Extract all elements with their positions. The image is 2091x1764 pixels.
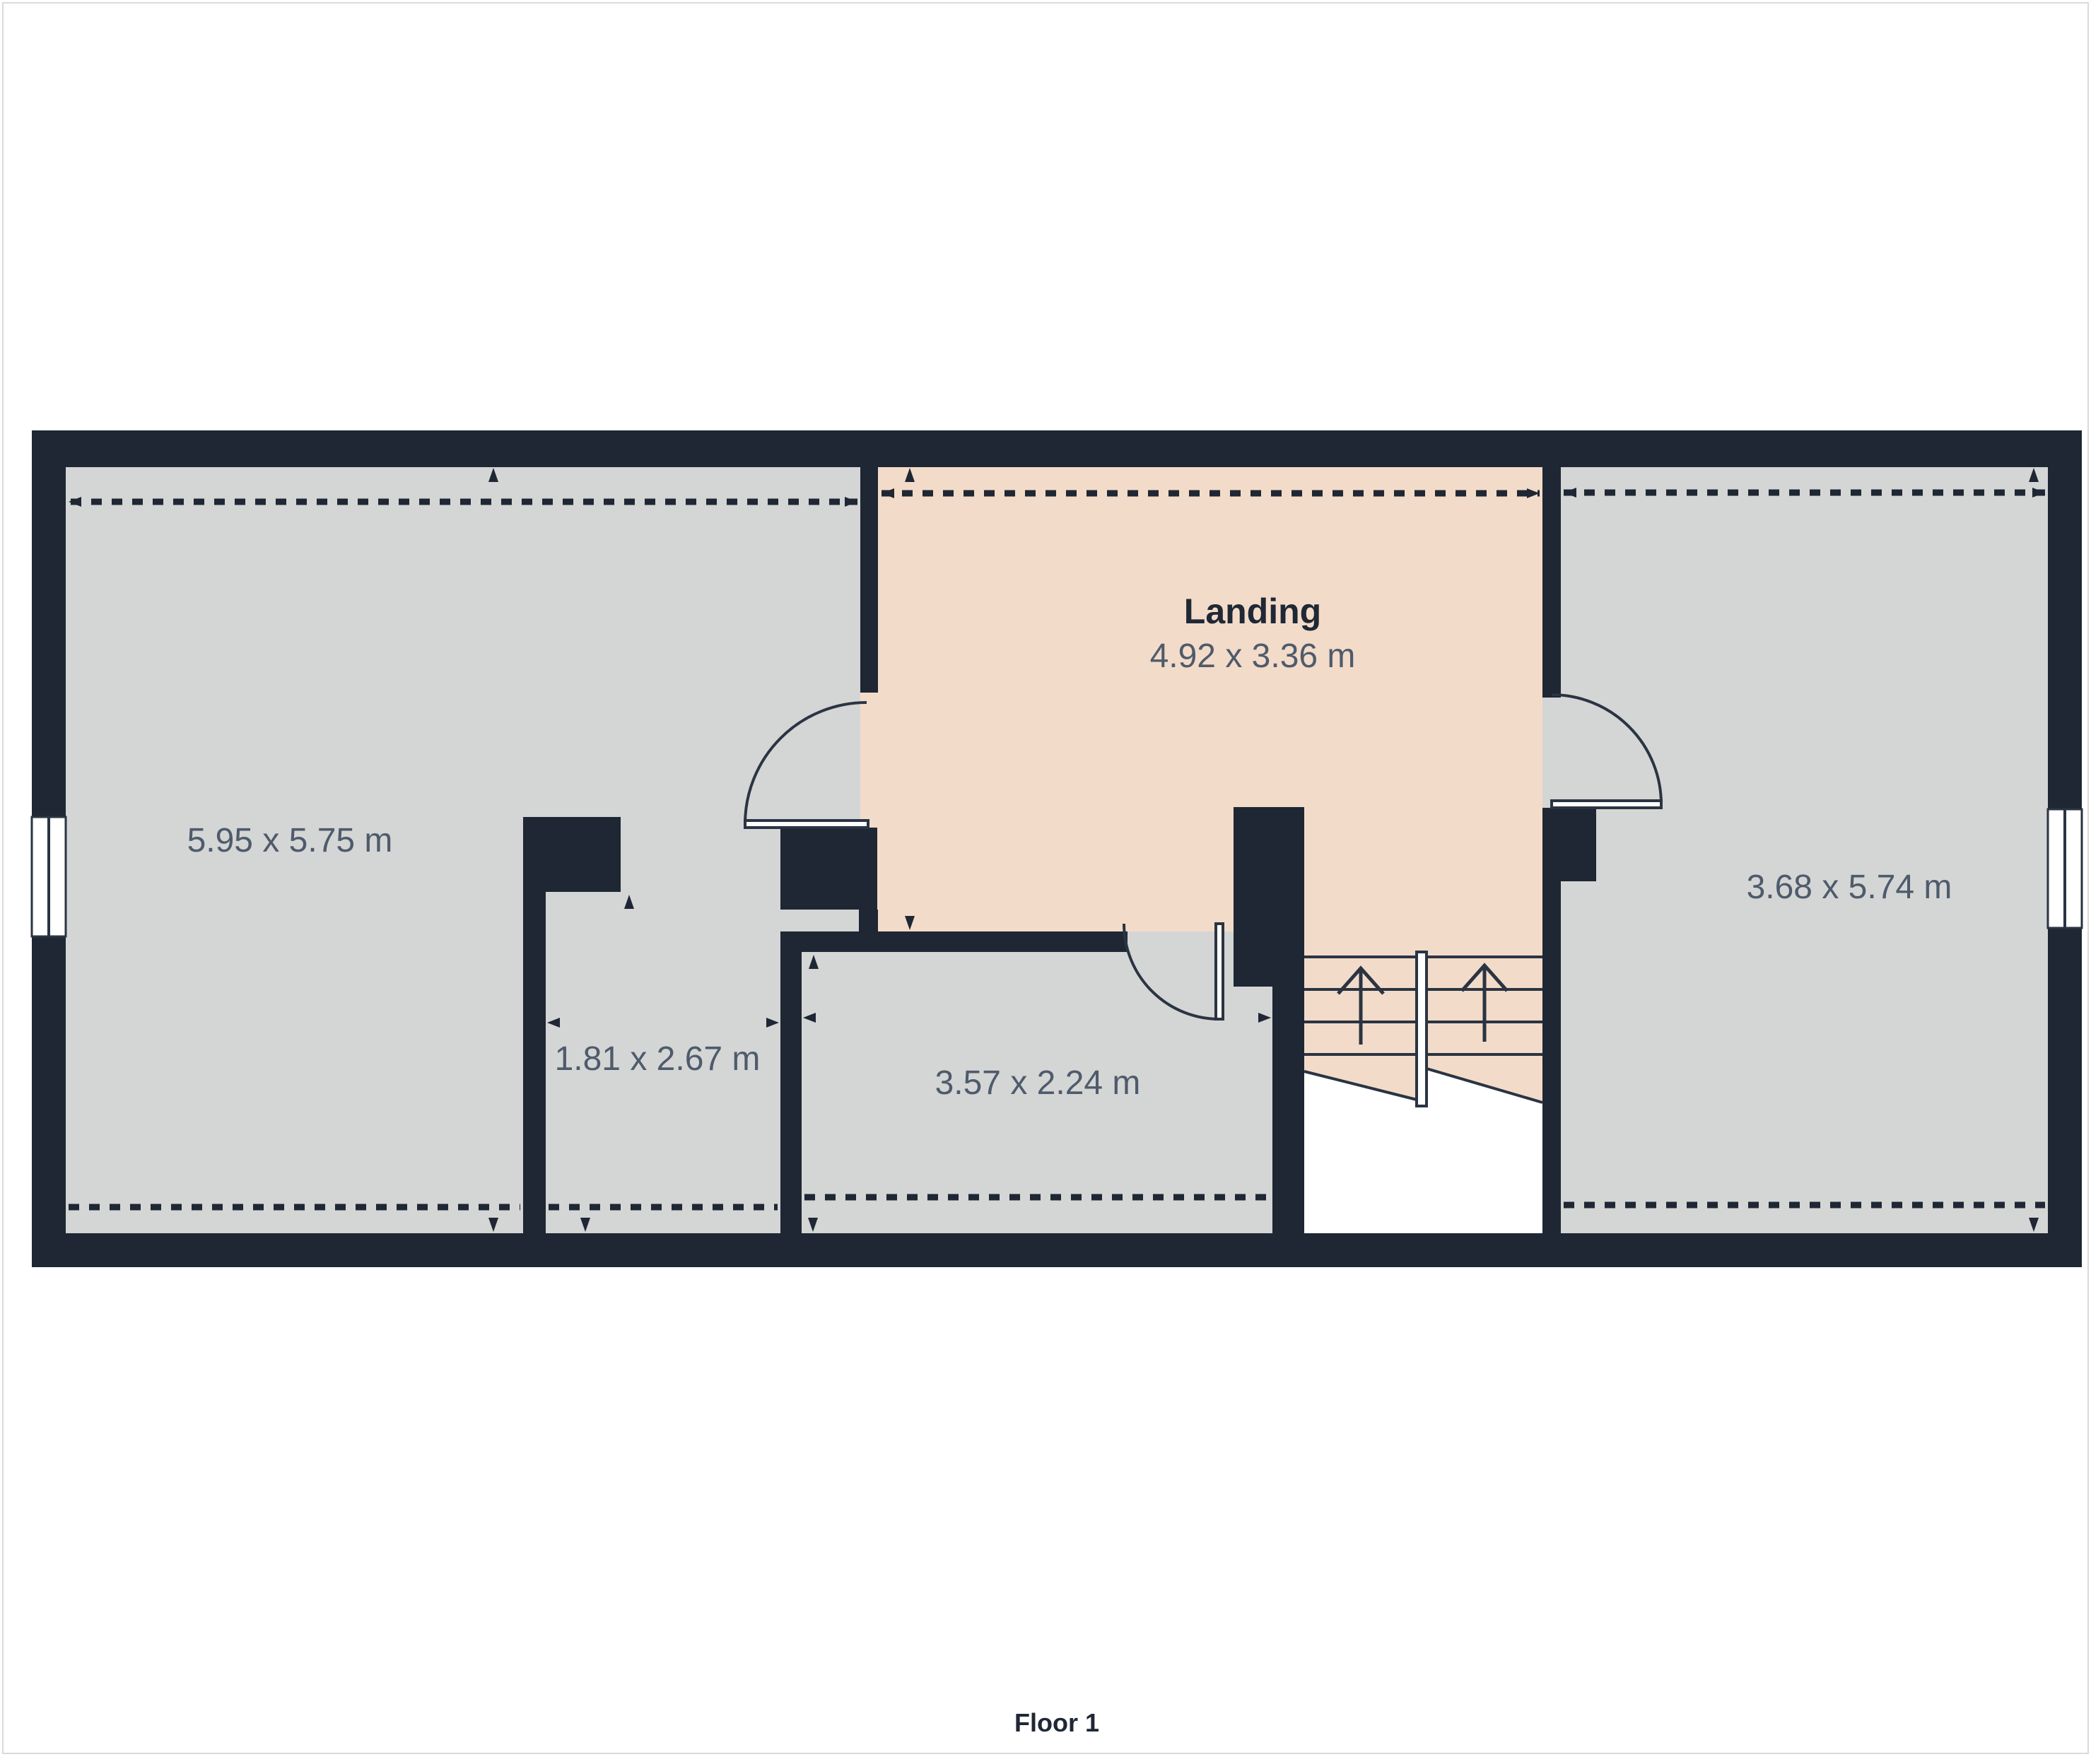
wall-stub-landing-southwest xyxy=(780,828,877,910)
wall-bottom xyxy=(32,1233,2082,1267)
stair-center-divider xyxy=(1417,952,1427,1106)
wall-leftroom-landing xyxy=(860,467,878,693)
wall-stub-rightroom-door xyxy=(1542,808,1596,881)
midroom-dims-label: 3.57 x 2.24 m xyxy=(935,1064,1141,1102)
wall-landing-rightroom-upper xyxy=(1542,467,1561,698)
wall-chunk-stair-west xyxy=(1234,807,1304,987)
rightroom-dims-label: 3.68 x 5.74 m xyxy=(1747,869,1952,906)
wall-top xyxy=(32,430,2082,467)
wall-band-small-rooms-top xyxy=(780,931,1127,952)
floorplan-canvas: Landing 4.92 x 3.36 m 5.95 x 5.75 m 1.81… xyxy=(0,0,2091,1764)
wall-between-small-rooms xyxy=(780,952,802,1233)
wall-left-upper xyxy=(32,430,66,817)
door-leaf-leftroom-landing xyxy=(745,821,868,828)
wall-smallroom-left xyxy=(523,892,546,1233)
wall-right-lower xyxy=(2048,928,2082,1267)
landing-floor xyxy=(860,467,1542,931)
wall-midroom-right-lower xyxy=(1272,987,1304,1233)
wall-stairwell-right xyxy=(1542,881,1561,1233)
landing-name-label: Landing xyxy=(1184,592,1321,631)
door-leaf-landing-midroom xyxy=(1216,924,1223,1019)
landing-dims-label: 4.92 x 3.36 m xyxy=(1150,637,1356,675)
leftroom-dims-label: 5.95 x 5.75 m xyxy=(187,822,393,859)
wall-left-lower xyxy=(32,936,66,1267)
wall-right-upper xyxy=(2048,430,2082,809)
smallroom-dims-label: 1.81 x 2.67 m xyxy=(555,1040,761,1078)
wall-stub-smallroom-topleft xyxy=(523,817,621,892)
floor-caption: Floor 1 xyxy=(1014,1708,1099,1737)
wall-stub-landing-south-narrow xyxy=(859,910,878,931)
floorplan-page: { "floor_label": "Floor 1", "rooms": { "… xyxy=(0,0,2091,1764)
door-leaf-landing-rightroom xyxy=(1552,801,1661,808)
